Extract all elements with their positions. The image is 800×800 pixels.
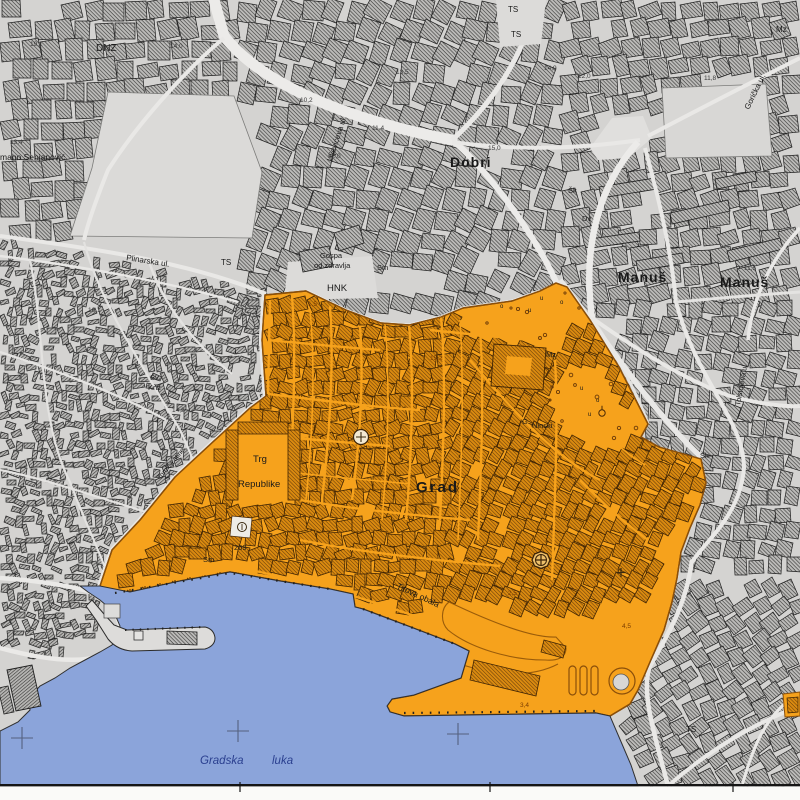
svg-text:Mz: Mz	[776, 25, 787, 34]
svg-text:12,0: 12,0	[578, 73, 591, 80]
svg-text:TS: TS	[511, 30, 521, 39]
svg-text:luka: luka	[272, 755, 293, 767]
svg-text:Sm: Sm	[377, 263, 388, 272]
svg-text:15,0: 15,0	[488, 145, 501, 152]
svg-text:15,2: 15,2	[430, 355, 443, 362]
svg-text:269: 269	[234, 543, 247, 552]
svg-text:Dobri: Dobri	[450, 154, 492, 170]
svg-text:11,5: 11,5	[744, 265, 757, 272]
svg-text:Sv.: Sv.	[150, 373, 160, 382]
svg-text:TS: TS	[508, 5, 518, 14]
svg-text:14,9: 14,9	[544, 65, 557, 72]
svg-text:4,5: 4,5	[622, 623, 631, 630]
svg-text:13,4: 13,4	[10, 139, 23, 146]
svg-text:14,0: 14,0	[170, 43, 183, 50]
svg-text:Manuš: Manuš	[618, 269, 667, 285]
svg-text:TS: TS	[221, 258, 231, 267]
svg-text:Ninski: Ninski	[532, 421, 553, 430]
svg-text:u: u	[540, 296, 543, 302]
svg-text:11,8: 11,8	[704, 75, 717, 82]
svg-text:Gospa: Gospa	[320, 251, 343, 260]
svg-text:14,2: 14,2	[172, 407, 185, 414]
svg-text:1,5: 1,5	[308, 301, 317, 308]
svg-text:16,1: 16,1	[88, 307, 101, 314]
svg-text:12,0: 12,0	[328, 153, 341, 160]
svg-text:19,1: 19,1	[30, 41, 43, 48]
svg-text:Dv: Dv	[582, 214, 591, 223]
svg-text:u: u	[588, 412, 591, 418]
svg-text:Mz: Mz	[546, 350, 556, 359]
svg-text:Šk: Šk	[568, 186, 577, 195]
svg-text:Križ: Križ	[148, 383, 161, 392]
svg-text:od zdravlja: od zdravlja	[314, 261, 351, 270]
svg-text:Trg: Trg	[253, 454, 267, 465]
svg-text:Grad: Grad	[416, 479, 459, 496]
svg-text:mano Senjanović: mano Senjanović	[0, 152, 66, 162]
svg-text:Republike: Republike	[238, 479, 280, 490]
svg-text:u: u	[528, 308, 531, 314]
svg-text:u: u	[580, 386, 583, 392]
svg-text:Sm: Sm	[203, 555, 214, 564]
svg-text:G.: G.	[522, 417, 530, 426]
svg-text:2,5: 2,5	[508, 590, 517, 597]
svg-text:13,5: 13,5	[396, 69, 409, 76]
svg-text:10,2: 10,2	[300, 97, 313, 104]
svg-text:Manuš: Manuš	[720, 274, 769, 290]
svg-text:3,4: 3,4	[520, 702, 529, 709]
svg-text:HNK: HNK	[327, 283, 348, 294]
svg-text:TS: TS	[686, 725, 696, 734]
svg-text:11,4: 11,4	[372, 125, 385, 132]
svg-text:Gradska: Gradska	[200, 755, 243, 767]
svg-text:DNZ: DNZ	[96, 43, 117, 54]
